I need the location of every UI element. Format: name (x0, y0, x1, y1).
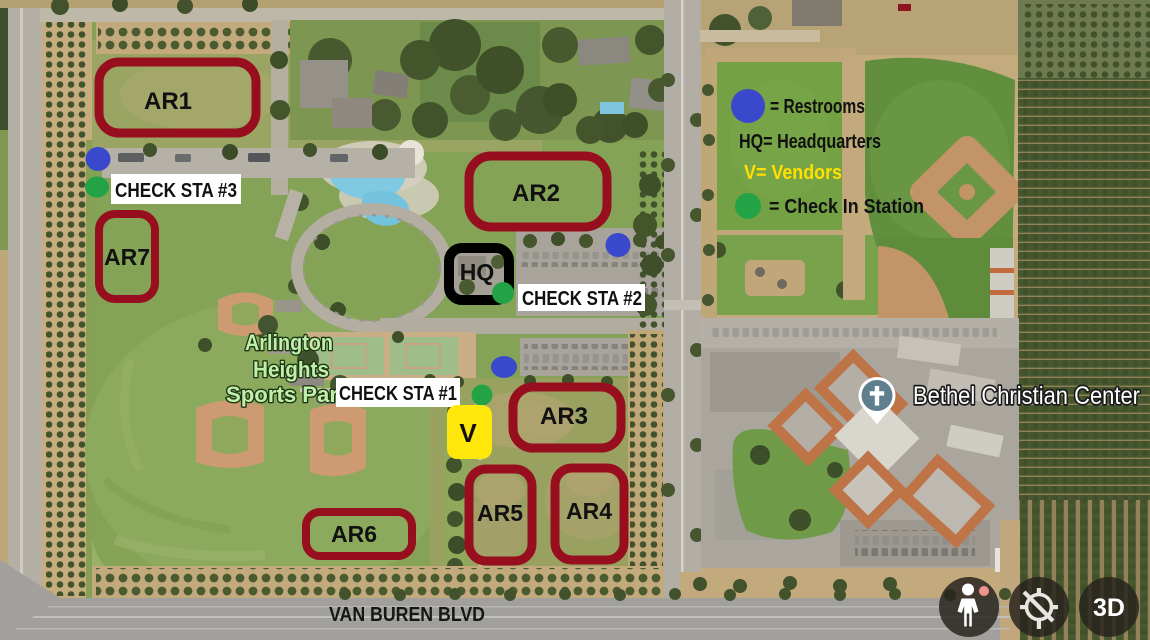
svg-text:AR2: AR2 (512, 180, 560, 207)
svg-text:CHECK STA #1: CHECK STA #1 (339, 383, 457, 405)
svg-text:3D: 3D (1093, 594, 1125, 622)
svg-text:AR1: AR1 (144, 88, 192, 115)
svg-text:Bethel Christian Center: Bethel Christian Center (913, 382, 1140, 410)
svg-text:= Restrooms: = Restrooms (770, 96, 865, 118)
svg-text:CHECK STA #3: CHECK STA #3 (115, 180, 237, 202)
svg-text:Sports Par: Sports Par (226, 382, 338, 407)
svg-text:Heights: Heights (253, 357, 329, 382)
svg-text:Arlington: Arlington (245, 330, 333, 355)
svg-text:HQ: HQ (460, 259, 495, 285)
svg-text:V= Vendors: V= Vendors (744, 162, 842, 184)
svg-text:V: V (459, 418, 477, 448)
svg-text:HQ= Headquarters: HQ= Headquarters (739, 131, 881, 153)
svg-text:= Check In Station: = Check In Station (769, 196, 924, 218)
svg-text:AR3: AR3 (540, 403, 588, 430)
svg-text:CHECK STA #2: CHECK STA #2 (522, 288, 642, 310)
svg-text:AR5: AR5 (477, 500, 523, 526)
svg-text:AR7: AR7 (104, 244, 150, 270)
svg-text:VAN BUREN BLVD: VAN BUREN BLVD (329, 604, 485, 626)
svg-text:AR4: AR4 (566, 498, 612, 524)
svg-text:AR6: AR6 (331, 521, 377, 547)
